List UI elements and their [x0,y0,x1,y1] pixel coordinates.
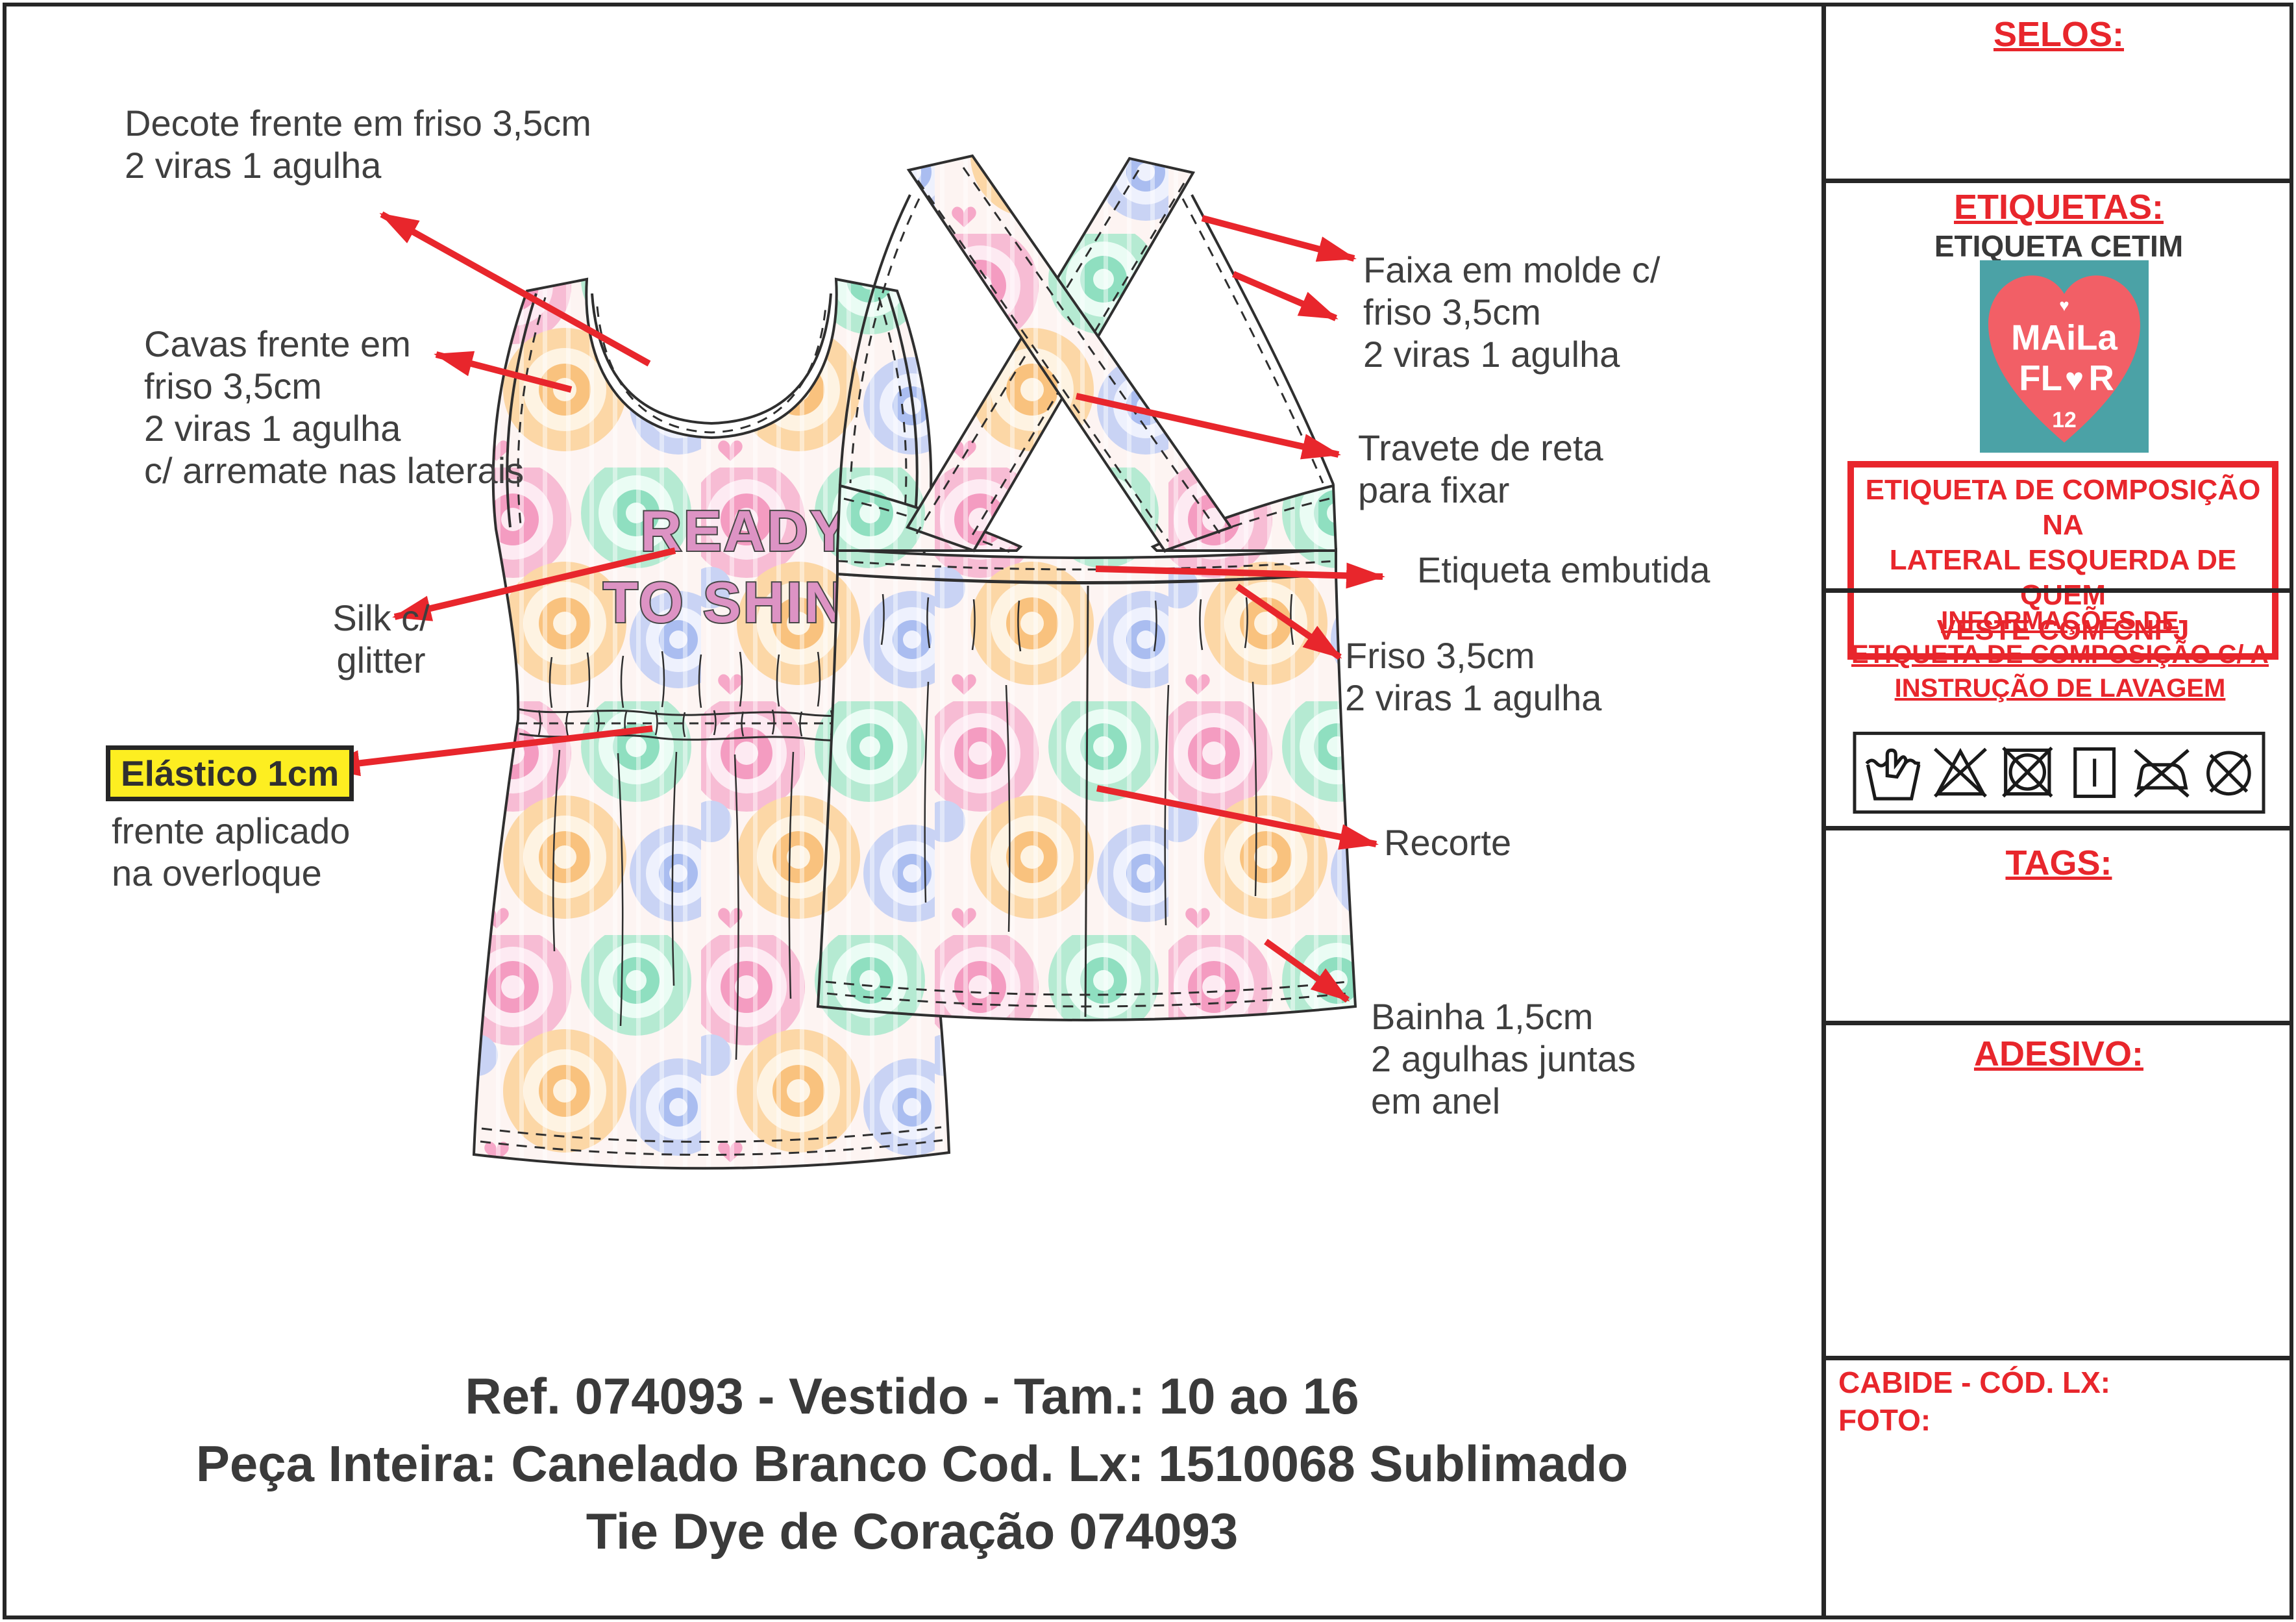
divider-adesivo [1824,1356,2293,1360]
care-symbols-strip [1853,731,2265,814]
footer-title-block: Ref. 074093 - Vestido - Tam.: 10 ao 16 P… [3,1362,1821,1565]
logo-word-r: R [2088,358,2114,398]
arrow-faixa-2 [1233,274,1336,318]
sidebar-heading-selos: SELOS: [1825,14,2292,55]
annotation-cavas: Cavas frente em friso 3,5cm 2 viras 1 ag… [144,323,524,492]
cabide-foto-block: CABIDE - CÓD. LX: FOTO: [1838,1364,2110,1439]
footer-line-fabric: Peça Inteira: Canelado Branco Cod. Lx: 1… [3,1430,1821,1497]
divider-informacoes [1824,826,2293,830]
logo-size-number: 12 [2052,408,2077,432]
annotation-faixa: Faixa em molde c/ friso 3,5cm 2 viras 1 … [1363,249,1660,376]
logo-word-maila: MAiLa [2011,318,2117,358]
footer-line-ref: Ref. 074093 - Vestido - Tam.: 10 ao 16 [3,1362,1821,1430]
annotation-recorte: Recorte [1384,822,1511,864]
divider-tags [1824,1021,2293,1025]
cabide-label: CABIDE - CÓD. LX: [1838,1364,2110,1401]
annotation-etiqueta-embutida: Etiqueta embutida [1417,549,1710,592]
back-dress-drawing [818,156,1355,1020]
arrow-faixa-1 [1202,218,1354,258]
footer-line-print: Tie Dye de Coração 074093 [3,1497,1821,1565]
annotation-friso: Friso 3,5cm 2 viras 1 agulha [1345,635,1601,719]
informacoes-note: INFORMAÇÕES DE ETIQUETA DE COMPOSIÇÃO C/… [1828,604,2292,705]
sidebar-divider-vertical [1821,3,1826,1619]
annotation-decote: Decote frente em friso 3,5cm 2 viras 1 a… [125,103,591,187]
sidebar-heading-etiquetas: ETIQUETAS: [1825,187,2292,227]
logo-heart-o-icon: ♥ [2065,362,2084,397]
annotation-bainha: Bainha 1,5cm 2 agulhas juntas em anel [1371,996,1636,1123]
divider-selos [1824,179,2293,183]
do-not-tumble-dry-icon [2003,748,2052,797]
annotation-travete: Travete de reta para fixar [1358,427,1603,512]
annotation-elastico-sub: frente aplicado na overloque [112,810,350,895]
foto-label: FOTO: [1838,1401,2110,1439]
elastico-label: Elástico 1cm [106,745,354,801]
sidebar-etiqueta-cetim-label: ETIQUETA CETIM [1825,229,2292,264]
annotation-silk: Silk c/ glitter [293,597,469,682]
divider-etiquetas [1824,588,2293,593]
logo-i-heart-icon: ♥ [2059,295,2069,315]
annotation-elastico-highlight: Elástico 1cm [106,745,354,801]
brand-heart-logo: ♥ MAiLa FL ♥ R 12 [1980,260,2149,453]
spec-sheet-page: READY TO SHINE [0,0,2296,1622]
sidebar-heading-tags: TAGS: [1825,843,2292,883]
logo-word-fl: FL [2019,358,2062,398]
sidebar-heading-adesivo: ADESIVO: [1825,1034,2292,1074]
